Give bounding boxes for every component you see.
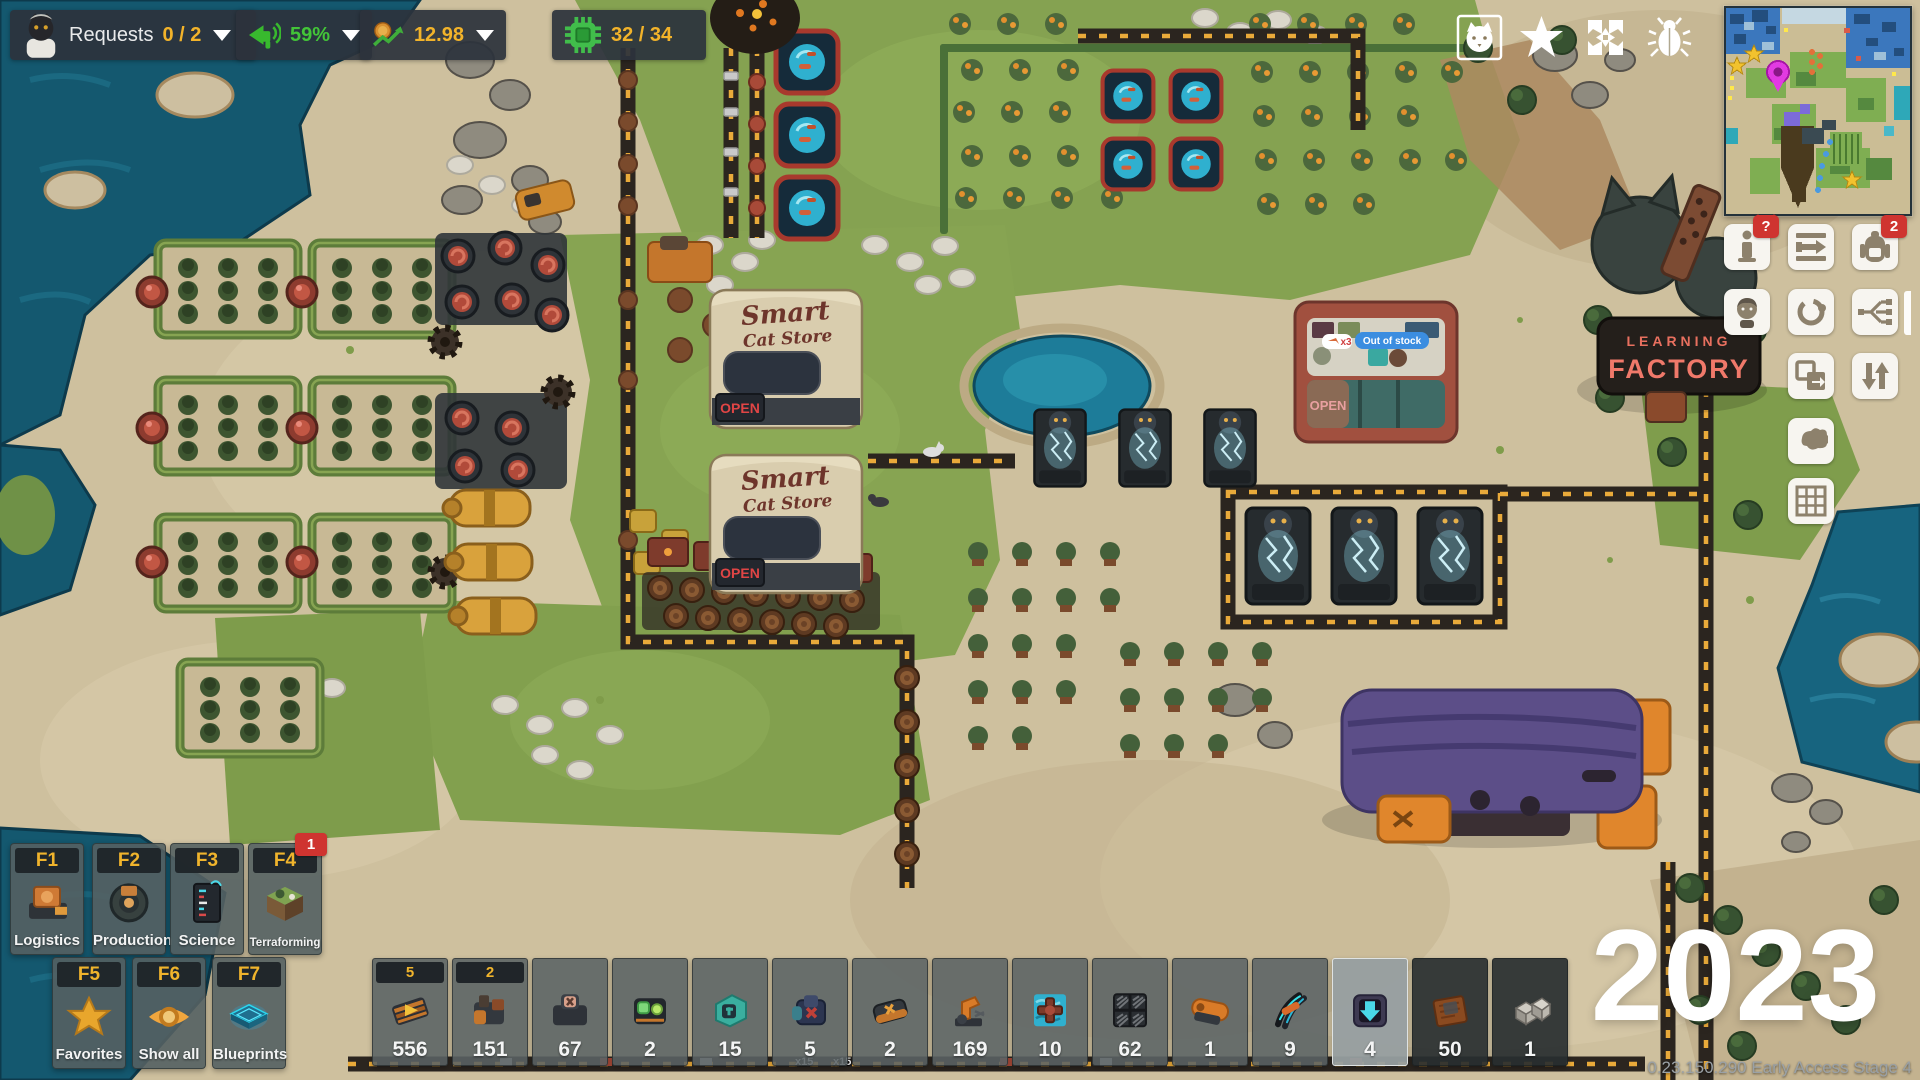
hotbar-slot-13-selected[interactable]: 4 [1332, 958, 1408, 1066]
press-item-icon [468, 988, 512, 1032]
blueprint-sheet-item-icon [1428, 988, 1472, 1032]
money-value: 12.98 [414, 24, 464, 47]
chevron-down-icon[interactable] [476, 30, 494, 41]
center-view-icon [1582, 14, 1629, 61]
milestones-button[interactable]: ? [1724, 224, 1770, 270]
grid-button[interactable] [1788, 478, 1834, 524]
cat-portrait-icon [1456, 14, 1503, 61]
favorites-star-icon [65, 993, 113, 1041]
water-pump-item-icon [1028, 988, 1072, 1032]
requests-value: 0 / 2 [163, 24, 202, 47]
monument-sign: LEARNING [1626, 333, 1731, 349]
category-terraforming[interactable]: F4 Terraforming 1 [248, 843, 322, 955]
center-view-button[interactable] [1582, 14, 1629, 61]
minimap-canvas [1726, 8, 1910, 214]
rotate-button[interactable] [1788, 289, 1834, 335]
star-button[interactable] [1518, 14, 1565, 61]
category-logistics[interactable]: F1 Logistics [10, 843, 84, 955]
cable-item-icon [1268, 988, 1312, 1032]
chevron-down-icon[interactable] [213, 30, 231, 41]
grate-item-icon [1108, 988, 1152, 1032]
hotbar-slot-2[interactable]: 2 151 [452, 958, 528, 1066]
machine-item-icon [548, 988, 592, 1032]
hotbar-slot-11[interactable]: 1 [1172, 958, 1248, 1066]
export-belt-icon [1794, 230, 1828, 264]
scanner-item-icon [628, 988, 672, 1032]
chevron-down-icon[interactable] [342, 30, 360, 41]
blueprints-icon [225, 993, 273, 1041]
sort-vertical-icon [1858, 359, 1892, 393]
island-icon [1794, 424, 1828, 458]
money-panel[interactable]: 12.98 [360, 10, 506, 60]
audience-panel[interactable]: 59% [236, 10, 372, 60]
copy-icon [1794, 359, 1828, 393]
category-favorites[interactable]: F5 Favorites [52, 957, 126, 1069]
harvester-robot[interactable] [1322, 690, 1670, 848]
star-icon [1518, 14, 1565, 61]
hopper-item-icon [708, 988, 752, 1032]
belt-item-icon [388, 988, 432, 1032]
portrait-button[interactable] [1724, 289, 1770, 335]
show-all-eye-icon [145, 993, 193, 1041]
backpack-button[interactable]: 2 [1852, 224, 1898, 270]
terraforming-badge: 1 [295, 833, 327, 856]
hotbar-slot-14[interactable]: 50 [1412, 958, 1488, 1066]
engine-item-icon [1188, 988, 1232, 1032]
year-overlay: 2023 [1591, 910, 1880, 1040]
coin-trend-icon [372, 18, 405, 52]
fabricator-item-icon [788, 988, 832, 1032]
slot-count: 556 [373, 1038, 447, 1062]
smart-cat-store-1[interactable]: Smart Cat Store OPEN [710, 290, 862, 428]
hotbar-slot-10[interactable]: 62 [1092, 958, 1168, 1066]
svg-text:OPEN: OPEN [1310, 398, 1347, 413]
rotate-icon [1794, 295, 1828, 329]
bug-icon [1646, 14, 1693, 61]
category-show-all[interactable]: F6 Show all [132, 957, 206, 1069]
hotbar-slot-4[interactable]: 2 [612, 958, 688, 1066]
audience-value: 59% [290, 24, 330, 47]
game-screen: Smart Cat Store OPEN Smart Cat Store OPE… [0, 0, 1920, 1080]
svg-text:x3: x3 [1340, 337, 1352, 348]
scientist-cat-avatar [22, 12, 60, 58]
svg-text:OPEN: OPEN [720, 565, 760, 581]
export-button[interactable] [1788, 224, 1834, 270]
minimap[interactable] [1724, 6, 1912, 216]
terraforming-icon [261, 879, 309, 927]
input-portal-item-icon [1348, 988, 1392, 1032]
production-icon [105, 879, 153, 927]
category-production[interactable]: F2 Production [92, 843, 166, 955]
cpu-value: 32 / 34 [611, 24, 672, 47]
scroll-indicator[interactable] [1904, 291, 1911, 335]
cpu-panel[interactable]: 32 / 34 [552, 10, 706, 60]
island-map-button[interactable] [1788, 418, 1834, 464]
cat-market[interactable]: Out of stock x3 OPEN [1295, 302, 1457, 442]
hotkey-label: F1 [15, 848, 79, 873]
hotbar-slot-3[interactable]: 67 [532, 958, 608, 1066]
chip-icon [564, 16, 602, 54]
slab-item-icon [868, 988, 912, 1032]
flow-graph-button[interactable] [1852, 289, 1898, 335]
svg-text:FACTORY: FACTORY [1608, 354, 1750, 384]
robo-arm-item-icon [948, 988, 992, 1032]
category-science[interactable]: F3 Science [170, 843, 244, 955]
category-blueprints[interactable]: F7 Blueprints [212, 957, 286, 1069]
logistics-icon [23, 879, 71, 927]
category-label: Logistics [11, 932, 83, 949]
hotbar-slot-8[interactable]: 169 [932, 958, 1008, 1066]
hotbar-slot-15[interactable]: 1 [1492, 958, 1568, 1066]
cat-portrait-button[interactable] [1456, 14, 1503, 61]
requests-label: Requests [69, 24, 154, 47]
backpack-badge: 2 [1881, 215, 1907, 238]
hotbar-slot-6[interactable]: 5 [772, 958, 848, 1066]
hotbar-slot-9[interactable]: 10 [1012, 958, 1088, 1066]
hotbar-slot-7[interactable]: 2 [852, 958, 928, 1066]
hotbar: 5 556 2 151 67 2 15 5 2 169 10 62 1 [372, 958, 1568, 1066]
milestones-badge: ? [1753, 215, 1779, 238]
flow-graph-icon [1858, 295, 1892, 329]
grid-icon [1794, 484, 1828, 518]
hotbar-slot-1[interactable]: 5 556 [372, 958, 448, 1066]
speech-bubble: Out of stock [1363, 336, 1422, 347]
science-icon [183, 879, 231, 927]
megaphone-icon [248, 19, 281, 51]
stone-blocks-item-icon [1508, 988, 1552, 1032]
sort-vertical-button[interactable] [1852, 353, 1898, 399]
hotbar-slot-12[interactable]: 9 [1252, 958, 1328, 1066]
copy-button[interactable] [1788, 353, 1834, 399]
slot-hotkey-badge: 5 [376, 962, 444, 983]
open-sign: OPEN [720, 400, 760, 416]
bug-report-button[interactable] [1646, 14, 1693, 61]
hotbar-slot-5[interactable]: 15 [692, 958, 768, 1066]
requests-panel[interactable]: Requests 0 / 2 [10, 10, 256, 60]
version-text: 0.23.150.290 Early Access Stage 4 [1647, 1058, 1912, 1078]
portrait-icon [1730, 295, 1764, 329]
smart-cat-store-2[interactable]: Smart Cat Store OPEN [710, 455, 862, 593]
